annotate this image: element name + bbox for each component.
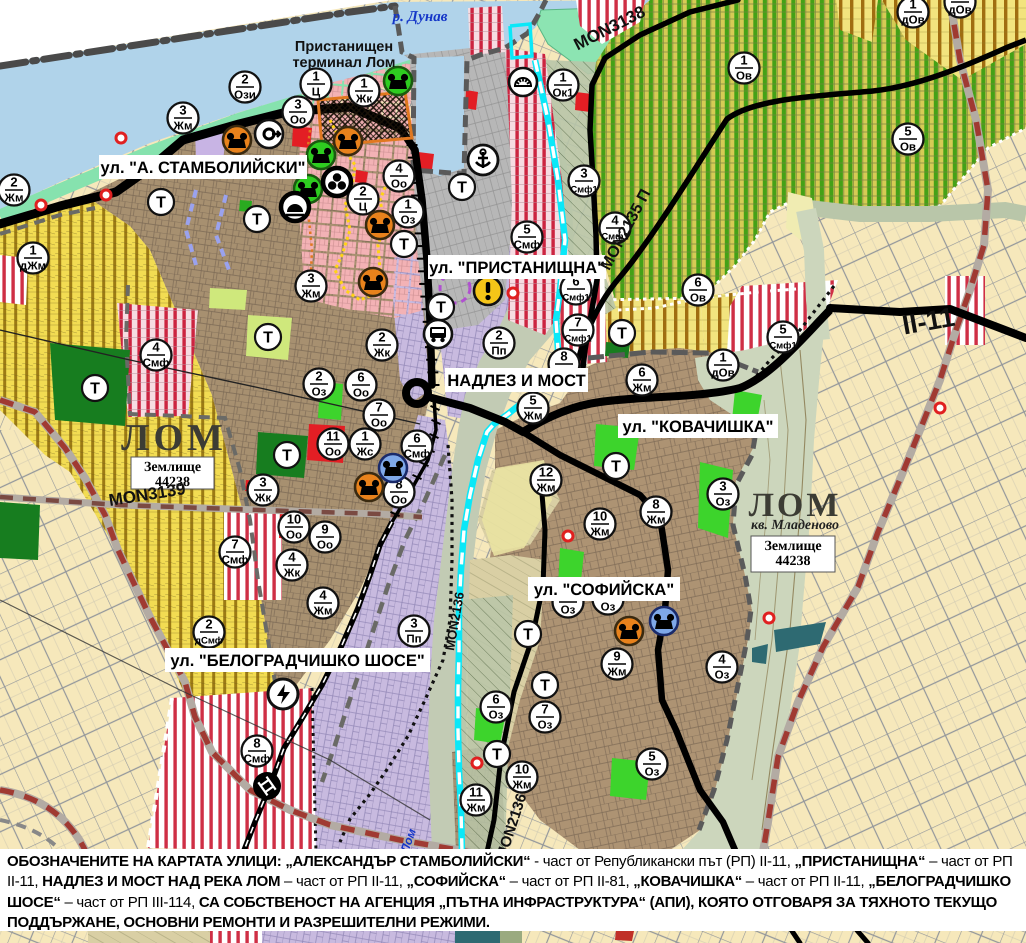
svg-text:3: 3 — [307, 271, 314, 286]
svg-text:Ози: Ози — [234, 90, 256, 102]
svg-text:Т: Т — [252, 212, 262, 229]
svg-text:Жм: Жм — [4, 193, 24, 205]
svg-text:7: 7 — [574, 315, 581, 330]
svg-text:дЖм: дЖм — [20, 261, 46, 273]
svg-text:8: 8 — [652, 497, 659, 512]
svg-text:кв. Младеново: кв. Младеново — [751, 518, 839, 533]
svg-text:6: 6 — [492, 692, 499, 707]
svg-text:Жм: Жм — [313, 606, 333, 618]
svg-text:Оз: Оз — [312, 387, 327, 399]
svg-text:5: 5 — [529, 393, 536, 408]
svg-text:Ов: Ов — [736, 71, 752, 83]
svg-text:5: 5 — [648, 749, 655, 764]
svg-text:Пристанищен: Пристанищен — [295, 39, 393, 55]
svg-text:Т: Т — [156, 195, 166, 212]
svg-text:Оз: Оз — [538, 720, 553, 732]
svg-text:Оз: Оз — [716, 497, 731, 509]
svg-text:3: 3 — [410, 616, 417, 631]
svg-text:Смф: Смф — [244, 754, 271, 766]
svg-text:5: 5 — [523, 222, 530, 237]
svg-text:44238: 44238 — [776, 554, 811, 569]
svg-text:10: 10 — [287, 512, 301, 527]
svg-text:3: 3 — [580, 166, 587, 181]
svg-text:2: 2 — [10, 175, 17, 190]
svg-text:2: 2 — [205, 617, 212, 632]
svg-text:Т: Т — [399, 237, 409, 254]
svg-text:1: 1 — [360, 76, 367, 91]
svg-text:4: 4 — [152, 340, 160, 355]
svg-text:дОв: дОв — [948, 5, 971, 17]
svg-text:Пп: Пп — [491, 346, 506, 358]
svg-text:6: 6 — [357, 370, 364, 385]
svg-text:Оо: Оо — [286, 530, 302, 542]
svg-text:Жк: Жк — [283, 568, 300, 580]
svg-text:терминал Лом: терминал Лом — [292, 55, 395, 71]
svg-text:4: 4 — [288, 550, 296, 565]
svg-text:Т: Т — [263, 330, 273, 347]
svg-text:Пп: Пп — [406, 634, 421, 646]
svg-text:12: 12 — [539, 465, 553, 480]
svg-text:Ов: Ов — [690, 293, 706, 305]
svg-text:2: 2 — [495, 328, 502, 343]
svg-text:Т: Т — [436, 300, 446, 317]
svg-text:8: 8 — [560, 349, 567, 364]
svg-text:Жм: Жм — [590, 527, 610, 539]
svg-text:Жк: Жк — [373, 348, 390, 360]
svg-text:ул. "СОФИЙСКА": ул. "СОФИЙСКА" — [534, 580, 674, 599]
svg-text:2: 2 — [315, 369, 322, 384]
svg-text:1: 1 — [404, 197, 411, 212]
svg-text:Т: Т — [523, 627, 533, 644]
svg-text:5: 5 — [904, 124, 911, 139]
svg-text:Жм: Жм — [173, 121, 193, 133]
svg-text:Землище: Землище — [144, 460, 201, 475]
svg-text:Оз: Оз — [645, 767, 660, 779]
svg-text:Жм: Жм — [523, 411, 543, 423]
svg-text:Жм: Жм — [536, 483, 556, 495]
svg-text:Ц: Ц — [312, 87, 321, 99]
svg-text:2: 2 — [359, 184, 366, 199]
svg-text:11: 11 — [469, 785, 483, 800]
svg-text:ЛОМ: ЛОМ — [121, 417, 227, 459]
svg-text:Оо: Оо — [325, 447, 341, 459]
svg-text:1: 1 — [559, 70, 566, 85]
svg-text:1: 1 — [740, 53, 747, 68]
svg-text:Оо: Оо — [391, 179, 407, 191]
svg-text:4: 4 — [319, 588, 327, 603]
svg-text:1: 1 — [909, 0, 916, 12]
svg-text:Т: Т — [617, 326, 627, 343]
svg-text:Т: Т — [282, 448, 292, 465]
svg-text:дСмф: дСмф — [195, 636, 223, 647]
svg-text:ул. "БЕЛОГРАДЧИШКО ШОСЕ": ул. "БЕЛОГРАДЧИШКО ШОСЕ" — [170, 652, 424, 670]
svg-text:1: 1 — [361, 429, 368, 444]
svg-text:Смф1: Смф1 — [769, 341, 797, 352]
svg-text:Оо: Оо — [391, 495, 407, 507]
svg-text:Т: Т — [540, 678, 550, 695]
svg-text:3: 3 — [719, 479, 726, 494]
svg-text:Оз: Оз — [601, 602, 616, 614]
svg-text:7: 7 — [541, 702, 548, 717]
svg-text:дОв: дОв — [901, 15, 924, 27]
svg-text:3: 3 — [294, 97, 301, 112]
svg-text:1: 1 — [29, 243, 36, 258]
svg-text:Смф: Смф — [404, 449, 431, 461]
svg-text:10: 10 — [593, 509, 607, 524]
svg-text:6: 6 — [413, 431, 420, 446]
svg-text:Смф: Смф — [222, 555, 249, 567]
svg-text:НАДЛЕЗ И МОСТ: НАДЛЕЗ И МОСТ — [447, 372, 585, 390]
svg-text:Жс: Жс — [356, 447, 374, 459]
svg-text:3: 3 — [259, 475, 266, 490]
svg-text:Ц: Ц — [359, 202, 368, 214]
svg-text:Смф1: Смф1 — [564, 334, 592, 345]
svg-text:2: 2 — [241, 72, 248, 87]
svg-text:1: 1 — [719, 350, 726, 365]
svg-text:р. Дунав: р. Дунав — [391, 9, 448, 25]
svg-text:Смф: Смф — [514, 240, 541, 252]
svg-text:Жм: Жм — [466, 803, 486, 815]
svg-text:7: 7 — [231, 537, 238, 552]
svg-text:Ок1: Ок1 — [552, 88, 574, 100]
svg-text:4: 4 — [718, 652, 726, 667]
svg-text:6: 6 — [694, 275, 701, 290]
svg-text:Землище: Землище — [764, 539, 821, 554]
svg-text:Т: Т — [457, 180, 467, 197]
svg-text:Жк: Жк — [355, 94, 372, 106]
svg-text:Жм: Жм — [512, 780, 532, 792]
svg-text:Оо: Оо — [290, 115, 306, 127]
svg-text:10: 10 — [515, 762, 529, 777]
svg-text:Т: Т — [492, 747, 502, 764]
svg-text:Ов: Ов — [900, 142, 916, 154]
svg-text:Оо: Оо — [353, 388, 369, 400]
svg-text:Оз: Оз — [561, 605, 576, 617]
svg-text:7: 7 — [375, 400, 382, 415]
svg-text:ул. "ПРИСТАНИЩНА": ул. "ПРИСТАНИЩНА" — [429, 259, 605, 277]
svg-text:Оз: Оз — [401, 215, 416, 227]
svg-text:Жм: Жм — [632, 383, 652, 395]
svg-text:Оо: Оо — [317, 540, 333, 552]
svg-text:ул. "А. СТАМБОЛИЙСКИ": ул. "А. СТАМБОЛИЙСКИ" — [101, 158, 306, 177]
svg-text:ул. "КОВАЧИШКА": ул. "КОВАЧИШКА" — [623, 418, 774, 436]
svg-text:Смф1: Смф1 — [570, 185, 598, 196]
svg-text:2: 2 — [378, 330, 385, 345]
svg-text:6: 6 — [638, 365, 645, 380]
svg-text:9: 9 — [613, 649, 620, 664]
svg-text:4: 4 — [395, 161, 403, 176]
svg-text:Оз: Оз — [489, 710, 504, 722]
svg-text:8: 8 — [253, 736, 260, 751]
svg-text:Оо: Оо — [371, 418, 387, 430]
svg-text:3: 3 — [179, 103, 186, 118]
svg-text:9: 9 — [321, 522, 328, 537]
svg-text:Смф: Смф — [143, 358, 170, 370]
svg-text:Жм: Жм — [607, 667, 627, 679]
svg-text:Т: Т — [90, 381, 100, 398]
svg-text:Т: Т — [611, 459, 621, 476]
svg-text:Оз: Оз — [715, 670, 730, 682]
svg-text:11: 11 — [326, 429, 340, 444]
svg-text:5: 5 — [779, 322, 786, 337]
svg-text:Жк: Жк — [254, 493, 271, 505]
svg-text:Жм: Жм — [301, 289, 321, 301]
svg-text:Жм: Жм — [646, 515, 666, 527]
svg-text:дОв: дОв — [711, 368, 734, 380]
svg-text:Смф1: Смф1 — [562, 293, 590, 304]
